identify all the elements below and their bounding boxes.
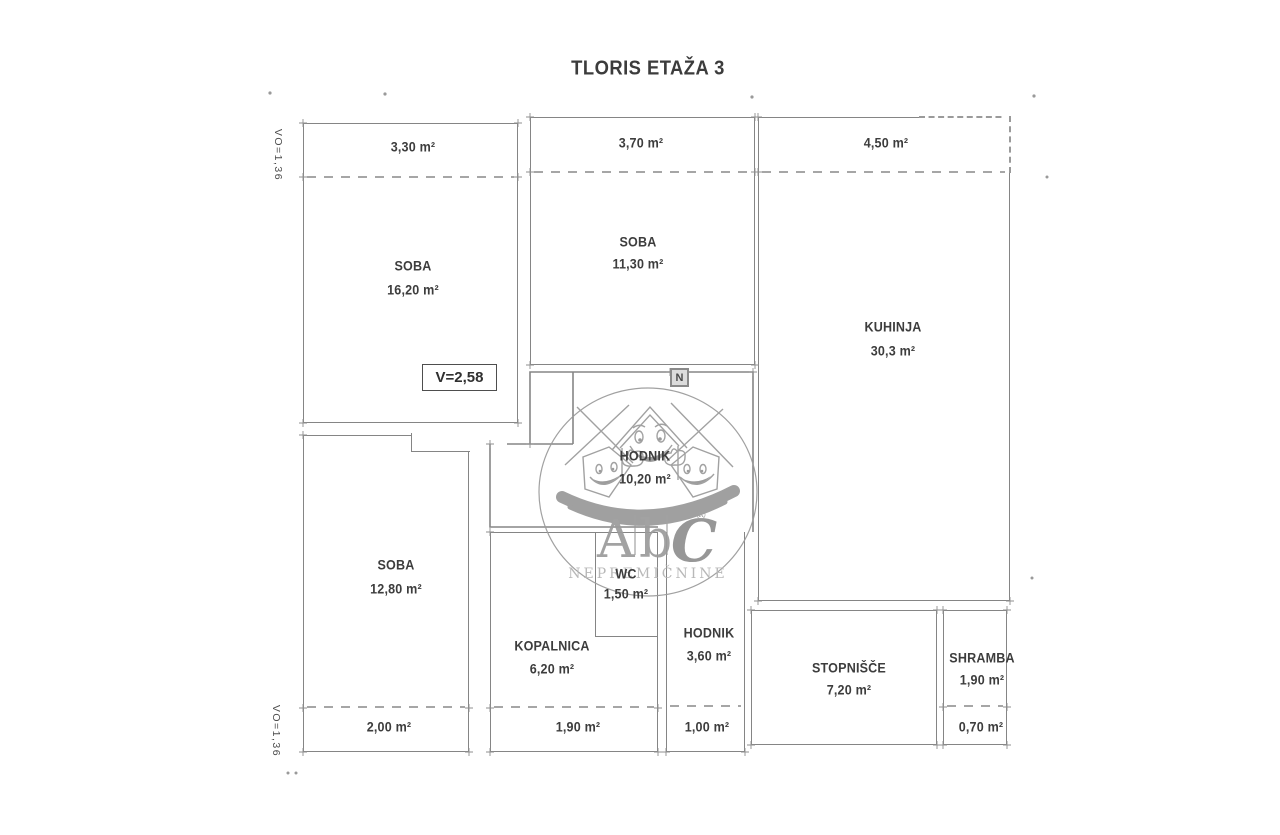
terrace-dashed-edge-right (1005, 116, 1011, 173)
room-area-label: 16,20 m² (387, 283, 439, 298)
terrace-dashed-edge-top (919, 116, 1011, 122)
room-kuhinja (758, 117, 1010, 601)
wall-notch (411, 433, 470, 452)
brand-swoosh (562, 491, 734, 523)
room-area-label: 11,30 m² (612, 257, 663, 272)
balcony-divider (307, 706, 465, 708)
registered-mark: ® (695, 508, 707, 522)
balcony-divider (670, 705, 741, 707)
room-name-label: SHRAMBA (949, 651, 1014, 666)
balcony-area-label: 0,70 m² (959, 720, 1004, 735)
room-area-label: 3,60 m² (687, 649, 732, 664)
balcony-divider (494, 706, 654, 708)
room-name-label: WC (615, 567, 636, 582)
north-indicator: N (670, 368, 689, 387)
room-area-label: 10,20 m² (619, 472, 671, 487)
ceiling-height-label-bottom: VO=1,36 (270, 705, 282, 757)
room-name-label: SOBA (619, 235, 656, 250)
room-name-label: SOBA (377, 558, 414, 573)
balcony-area-label: 2,00 m² (367, 720, 412, 735)
room-area-label: 6,20 m² (530, 662, 575, 677)
room-area-label: 1,50 m² (604, 587, 649, 602)
room-name-label: STOPNIŠČE (812, 661, 886, 676)
room-area-label: 12,80 m² (370, 582, 422, 597)
ceiling-height-label-top: VO=1,36 (272, 129, 284, 181)
balcony-area-label: 1,00 m² (685, 720, 730, 735)
floor-plan-page: TLORIS ETAŽA 3 VO=1,36 VO=1,36 (0, 0, 1280, 835)
room-area-label: 1,90 m² (960, 673, 1005, 688)
room-height-box: V=2,58 (422, 364, 497, 391)
balcony-divider (947, 705, 1003, 707)
balcony-divider (307, 176, 514, 178)
room-name-label: SOBA (394, 259, 431, 274)
balcony-area-label: 1,90 m² (556, 720, 601, 735)
room-name-label: KOPALNICA (514, 639, 589, 654)
room-wc (595, 532, 658, 637)
page-title: TLORIS ETAŽA 3 (571, 58, 725, 81)
balcony-divider (534, 171, 751, 173)
room-name-label: HODNIK (620, 449, 671, 464)
room-area-label: 30,3 m² (871, 344, 916, 359)
balcony-area-label: 4,50 m² (864, 136, 909, 151)
balcony-area-label: 3,30 m² (391, 140, 436, 155)
room-stopnisce (751, 610, 937, 745)
balcony-area-label: 3,70 m² (619, 136, 664, 151)
balcony-divider (762, 171, 1006, 173)
room-name-label: KUHINJA (864, 320, 921, 335)
room-name-label: HODNIK (684, 626, 735, 641)
room-area-label: 7,20 m² (827, 683, 872, 698)
